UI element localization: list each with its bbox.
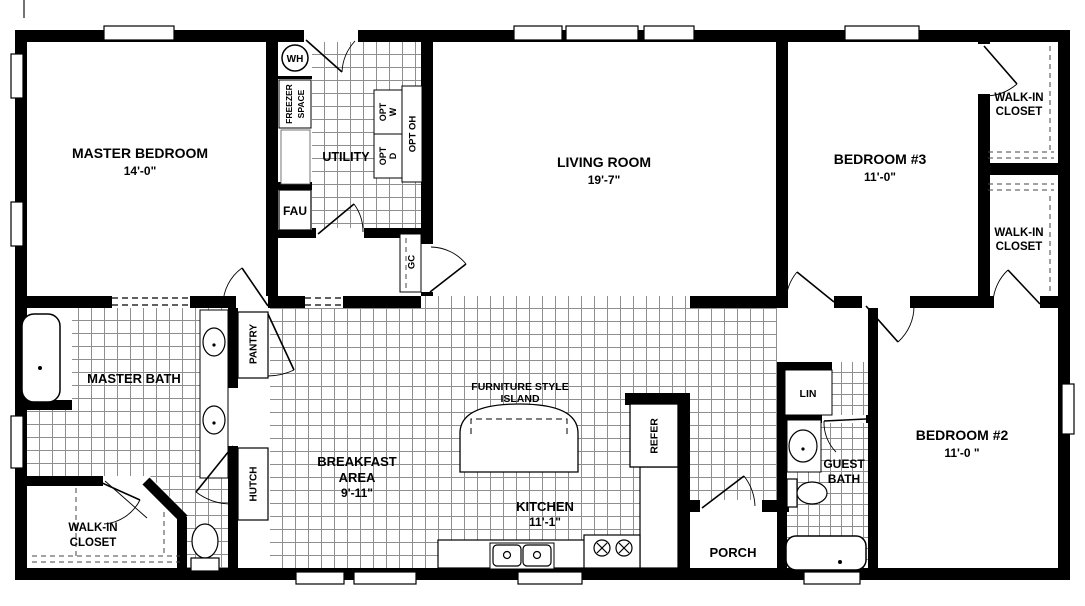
bedroom3-closet-door <box>984 46 1017 96</box>
room-label-walk-in-closet-1b: CLOSET <box>996 106 1043 118</box>
living-room-hall-door <box>430 247 466 292</box>
room-dim-living-room: 19'-7" <box>588 173 621 187</box>
water-heater-label: WH <box>287 54 304 65</box>
freezer-space-label-b: SPACE <box>296 89 306 118</box>
fau-box <box>279 190 311 230</box>
pantry-label: PANTRY <box>249 324 260 364</box>
room-label-walk-in-closet-2b: CLOSET <box>996 241 1043 253</box>
freezer-space-box <box>279 80 311 128</box>
fau-label: FAU <box>283 204 307 218</box>
utility-floor-tiles <box>312 42 421 232</box>
pantry-box <box>238 312 268 378</box>
room-label-bedroom3: BEDROOM #3 <box>834 151 927 167</box>
floor-plan: MASTER BEDROOM 14'-0" LIVING ROOM 19'-7"… <box>0 0 1085 606</box>
master-bath-floor-tiles <box>27 308 236 568</box>
bedroom2-door <box>866 306 914 342</box>
gc-label: GC <box>407 255 418 269</box>
room-label-living-room: LIVING ROOM <box>557 154 651 170</box>
room-dim-bedroom3: 11'-0" <box>864 170 896 184</box>
water-heater-icon <box>282 45 308 71</box>
bedroom2-closet-door <box>993 270 1040 304</box>
utility-shelf-box <box>281 130 310 184</box>
hutch-label: HUTCH <box>249 467 260 502</box>
room-label-bedroom2: BEDROOM #2 <box>916 427 1009 443</box>
gc-closet-box <box>400 234 421 292</box>
kitchen-breakfast-floor-tiles <box>270 296 777 568</box>
room-label-walk-in-closet-1a: WALK-IN <box>994 92 1043 104</box>
room-label-master-bedroom: MASTER BEDROOM <box>72 145 208 161</box>
hutch-box <box>238 448 268 520</box>
master-bedroom-door <box>223 268 268 306</box>
room-dim-bedroom2: 11'-0 " <box>944 446 979 460</box>
guest-bath-floor-tiles <box>787 362 868 568</box>
room-dim-master-bedroom: 14'-0" <box>124 164 157 178</box>
bedroom3-door <box>786 272 834 302</box>
freezer-space-label-a: FREEZER <box>284 84 294 124</box>
room-label-walk-in-closet-2a: WALK-IN <box>994 227 1043 239</box>
